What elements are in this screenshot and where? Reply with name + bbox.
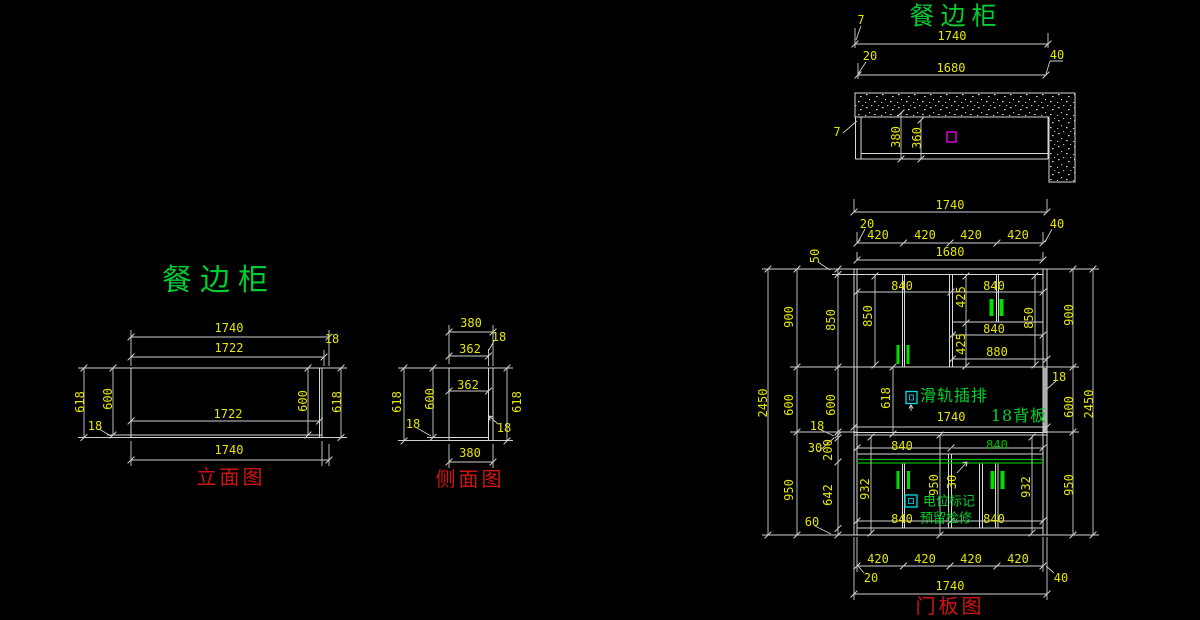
cad-linework	[0, 0, 1200, 620]
cad-drawing-canvas: 餐边柜71740204016807380360餐边柜17401817226186…	[0, 0, 1200, 620]
door-handles	[897, 299, 1005, 489]
door-handle	[897, 345, 900, 364]
door-handle	[897, 471, 900, 489]
door-handle	[907, 345, 910, 364]
door-panel-view	[762, 199, 1099, 600]
side-view	[398, 325, 513, 468]
socket-symbol-upper	[906, 392, 917, 404]
socket-symbol-lower	[905, 495, 917, 507]
door-handle	[991, 471, 995, 489]
shelf-lines-green	[857, 460, 1043, 464]
door-handle	[1001, 471, 1005, 489]
door-handle	[1000, 299, 1004, 316]
door-handle	[990, 299, 994, 316]
wall-hatch	[855, 93, 1075, 182]
back-panel-strip	[1043, 368, 1047, 432]
elevation-view	[78, 330, 347, 466]
plan-view	[843, 26, 1075, 182]
door-handle	[907, 471, 910, 489]
outlet-symbol-plan	[947, 132, 956, 142]
